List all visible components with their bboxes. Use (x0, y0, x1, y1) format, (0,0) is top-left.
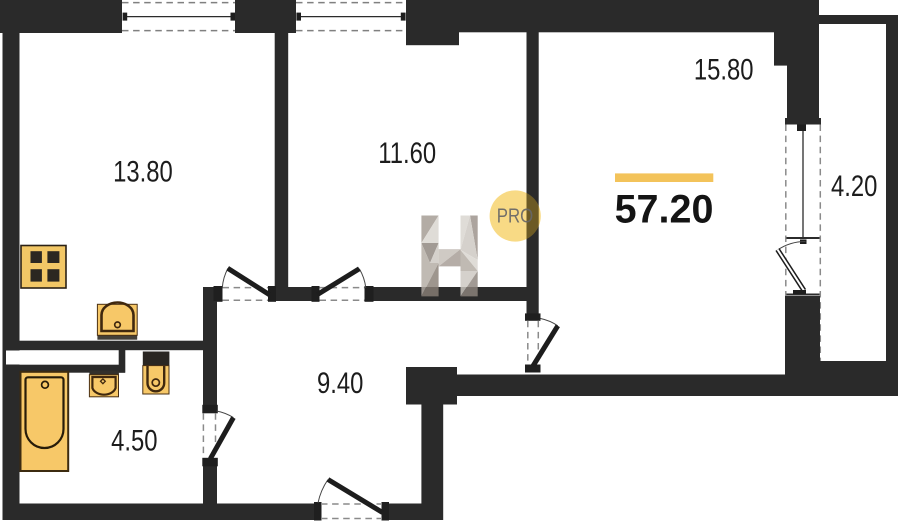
svg-text:13.80: 13.80 (113, 155, 173, 188)
svg-text:57.20: 57.20 (615, 187, 714, 231)
svg-text:15.80: 15.80 (694, 53, 754, 86)
svg-text:4.50: 4.50 (111, 424, 157, 457)
svg-text:4.20: 4.20 (831, 169, 877, 202)
svg-text:11.60: 11.60 (378, 136, 436, 169)
svg-text:9.40: 9.40 (317, 366, 363, 399)
svg-text:PRO: PRO (497, 204, 533, 227)
